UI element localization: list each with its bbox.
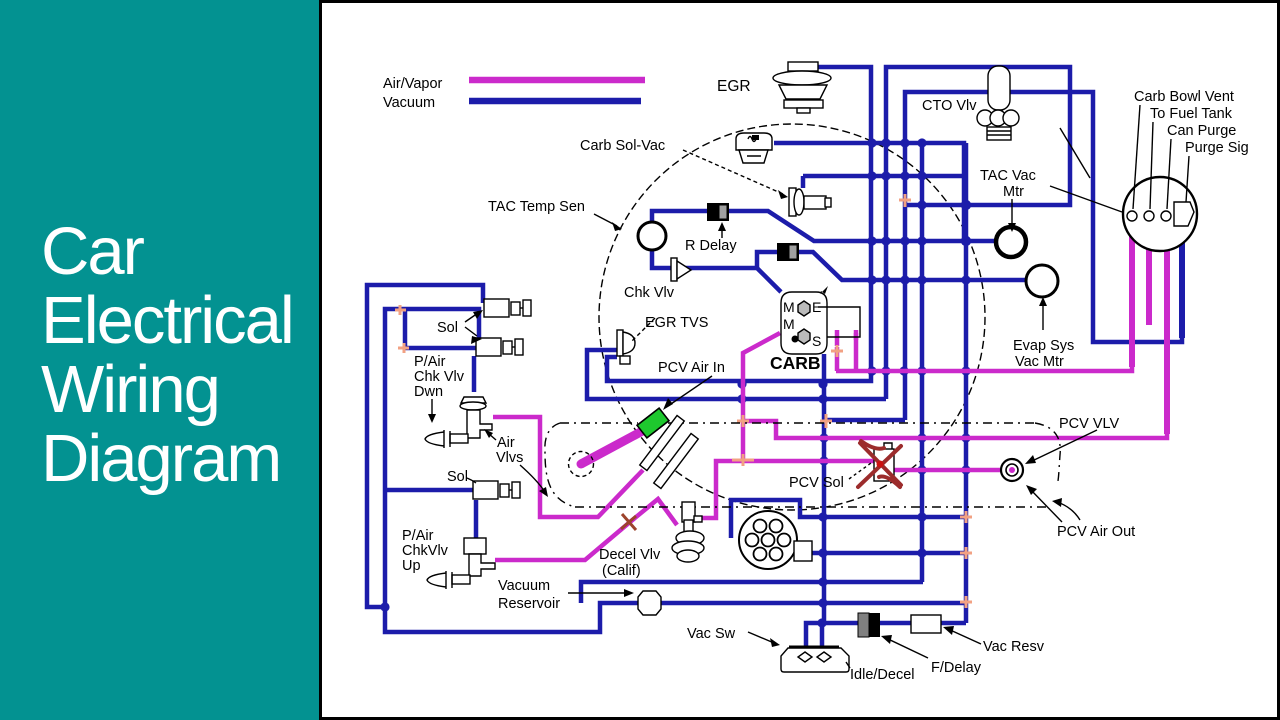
svg-text:Sol: Sol: [437, 320, 458, 336]
svg-text:Vac Resv: Vac Resv: [983, 639, 1045, 655]
svg-text:PCV VLV: PCV VLV: [1059, 416, 1120, 432]
svg-text:R Delay: R Delay: [685, 238, 737, 254]
svg-text:Purge Sig: Purge Sig: [1185, 140, 1249, 156]
svg-text:TAC Temp Sen: TAC Temp Sen: [488, 199, 585, 215]
svg-text:P/Air: P/Air: [414, 354, 446, 370]
svg-text:Idle/Decel: Idle/Decel: [850, 667, 914, 683]
svg-text:F/Delay: F/Delay: [931, 660, 982, 676]
svg-text:Up: Up: [402, 558, 421, 574]
svg-text:CARB: CARB: [770, 353, 821, 373]
svg-text:Decel Vlv: Decel Vlv: [599, 547, 661, 563]
svg-text:Carb Bowl Vent: Carb Bowl Vent: [1134, 89, 1234, 105]
svg-text:EGR: EGR: [717, 78, 751, 95]
svg-text:Chk Vlv: Chk Vlv: [624, 285, 675, 301]
svg-text:Vac Mtr: Vac Mtr: [1015, 354, 1064, 370]
svg-text:M: M: [783, 316, 795, 332]
svg-text:Evap Sys: Evap Sys: [1013, 338, 1074, 354]
svg-text:To Fuel Tank: To Fuel Tank: [1150, 106, 1233, 122]
svg-text:Vacuum: Vacuum: [383, 95, 435, 111]
svg-text:ChkVlv: ChkVlv: [402, 543, 449, 559]
svg-text:EGR TVS: EGR TVS: [645, 315, 708, 331]
svg-text:Vlvs: Vlvs: [496, 450, 523, 466]
svg-text:Can Purge: Can Purge: [1167, 123, 1236, 139]
svg-text:Sol: Sol: [447, 469, 468, 485]
svg-text:PCV Air Out: PCV Air Out: [1057, 524, 1135, 540]
svg-text:M: M: [783, 299, 795, 315]
svg-text:Mtr: Mtr: [1003, 184, 1024, 200]
svg-text:CTO Vlv: CTO Vlv: [922, 98, 977, 114]
svg-text:Carb Sol-Vac: Carb Sol-Vac: [580, 138, 665, 154]
svg-text:PCV Air In: PCV Air In: [658, 360, 725, 376]
svg-text:Vac Sw: Vac Sw: [687, 626, 736, 642]
svg-text:(Calif): (Calif): [602, 563, 641, 579]
svg-text:Reservoir: Reservoir: [498, 596, 560, 612]
svg-text:Chk Vlv: Chk Vlv: [414, 369, 465, 385]
svg-text:Vacuum: Vacuum: [498, 578, 550, 594]
svg-text:P/Air: P/Air: [402, 528, 434, 544]
svg-text:PCV Sol: PCV Sol: [789, 475, 844, 491]
svg-text:S: S: [812, 333, 821, 349]
svg-text:Air/Vapor: Air/Vapor: [383, 76, 443, 92]
svg-text:E: E: [812, 299, 821, 315]
svg-text:Dwn: Dwn: [414, 384, 443, 400]
svg-text:TAC Vac: TAC Vac: [980, 168, 1036, 184]
svg-text:Air: Air: [497, 435, 515, 451]
